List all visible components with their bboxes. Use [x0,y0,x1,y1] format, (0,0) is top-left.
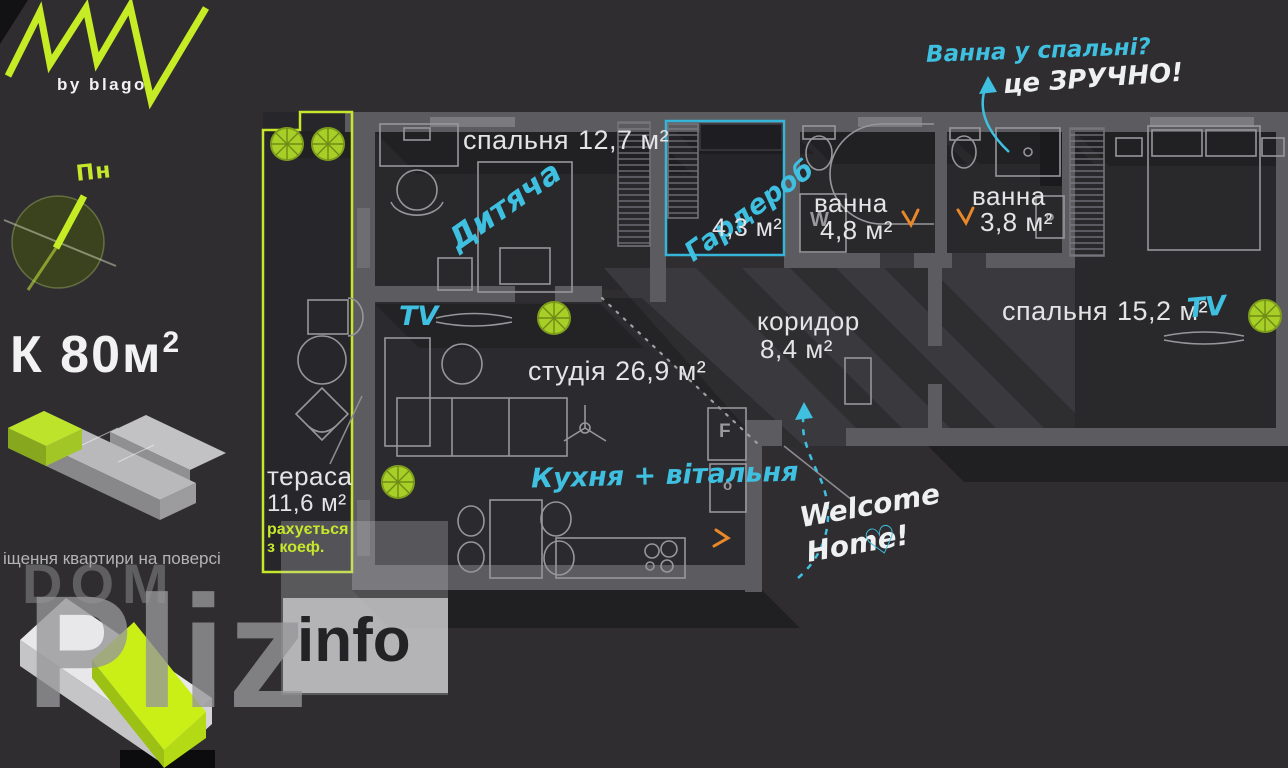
plant-icon [271,128,303,160]
terrace-coef-note-2: з коеф. [267,539,324,557]
fridge-marker: F [719,422,731,441]
area-code: К 80м [10,326,163,384]
bath1-door-gap [880,253,914,268]
apartment-area-title: К 80м2 [10,328,181,381]
floorplan-poster: by blago Пн К 80м2 іщення квартири на по… [0,0,1288,768]
room-label-studio: студія26,9 м² [528,358,706,385]
room-area: 26,9 м² [615,356,706,386]
room-note-kitchen-living: Кухня + вітальня [531,459,799,493]
plant-icon [1249,300,1281,332]
room-label-bedroom2: спальня15,2 м² [1002,298,1208,325]
watermark-info: info [297,610,411,672]
watermark-pliz: Pliz [26,572,310,732]
plant-icon [538,302,570,334]
plant-icon [382,466,414,498]
room-name: студія [528,356,606,386]
duct-shaft [1040,132,1062,186]
shelving-hatch-icon [668,124,698,218]
closet-hatch-icon [1070,128,1104,256]
terrace-coef-note-1: рахується [267,521,348,539]
room-name-terrace: тераса [267,463,352,489]
room-area-wardrobe: 4,3 м² [712,216,782,241]
room-label-bedroom1: спальня12,7 м² [463,127,669,154]
room-name: спальня [1002,296,1108,326]
room-name: спальня [463,125,569,155]
room-area-bath1: 4,8 м² [820,217,893,243]
tv-marker-bedroom: TV [1186,292,1228,322]
compass-north-label: Пн [75,160,113,186]
brand-tagline: by blago [57,76,147,93]
area-sup: 2 [163,326,182,359]
oven-marker: o [723,478,732,493]
bath2-door-gap [952,253,986,268]
plant-icon [312,128,344,160]
shelf-icon [700,124,782,150]
room-name-corridor: коридор [757,308,860,334]
washer-marker: W [810,210,829,230]
room-area: 12,7 м² [578,125,669,155]
room-name-bath2: ванна [972,183,1046,209]
room-area-bath2: 3,8 м² [980,209,1053,235]
room-area-corridor: 8,4 м² [760,336,833,362]
tv-marker-studio: TV [399,303,438,330]
room-area-terrace: 11,6 м² [267,492,347,516]
